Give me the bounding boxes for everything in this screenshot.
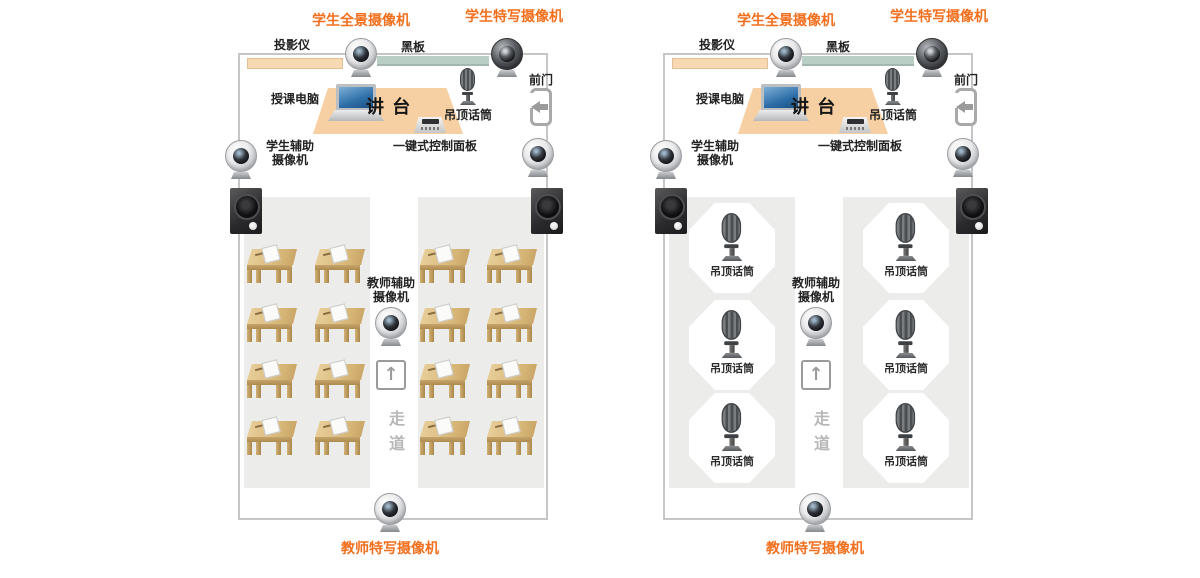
student-closeup-webcam-icon [915, 36, 949, 78]
teacher-aux-camera-label: 教师辅助 摄像机 [792, 276, 840, 305]
teacher-closeup-webcam-icon [373, 491, 407, 533]
student-aux-webcam-right-icon [521, 136, 555, 178]
blackboard-bar [377, 56, 489, 66]
ceiling-mic-icon [457, 68, 479, 106]
projector-label: 投影仪 [274, 38, 310, 52]
desk-icon [485, 245, 539, 287]
aisle-direction-box: ↑ [376, 360, 406, 390]
classroom-diagram-ceiling-mics: 学生全景摄像机 学生特写摄像机 投影仪 黑板 前门 讲 台 授课电脑 吊顶话筒 … [655, 0, 995, 578]
classroom-av-layout-diagrams: 学生全景摄像机 学生特写摄像机 投影仪 黑板 前门 讲 台 授课电脑 吊顶话筒 … [0, 0, 1200, 578]
student-panoramic-camera-label: 学生全景摄像机 [312, 13, 410, 30]
control-panel-icon [414, 117, 446, 133]
ceiling-mic-zone: 吊顶话筒 [689, 300, 775, 390]
podium-label: 讲 台 [366, 97, 411, 119]
control-panel-label: 一键式控制面板 [393, 139, 477, 153]
ceiling-mic-icon [718, 213, 747, 262]
podium-label: 讲 台 [791, 97, 836, 119]
student-panoramic-webcam-icon [769, 36, 803, 78]
ceiling-mic-zone-label: 吊顶话筒 [689, 453, 775, 469]
student-aux-webcam-left-icon [224, 138, 258, 180]
desk-icon [245, 245, 299, 287]
student-closeup-webcam-icon [490, 36, 524, 78]
front-door-icon [955, 88, 977, 126]
arrow-left-icon [531, 101, 548, 113]
desk-icon [313, 245, 367, 287]
aisle-label: 走道 [808, 410, 832, 460]
desk-icon [418, 360, 472, 402]
control-panel-label: 一键式控制面板 [818, 139, 902, 153]
desk-icon [245, 304, 299, 346]
student-closeup-camera-label: 学生特写摄像机 [465, 9, 563, 26]
desk-icon [485, 360, 539, 402]
desk-icon [418, 304, 472, 346]
ceiling-mic-zone-label: 吊顶话筒 [863, 263, 949, 279]
teacher-closeup-camera-label: 教师特写摄像机 [341, 541, 439, 558]
blackboard-label: 黑板 [401, 40, 425, 54]
front-door-label: 前门 [529, 73, 553, 87]
ceiling-mic-zone: 吊顶话筒 [863, 203, 949, 293]
ceiling-mic-icon [892, 213, 921, 262]
ceiling-mic-icon [718, 310, 747, 359]
ceiling-mic-zone-label: 吊顶话筒 [689, 360, 775, 376]
blackboard-label: 黑板 [826, 40, 850, 54]
teacher-aux-webcam-icon [374, 305, 408, 347]
ceiling-mic-zone: 吊顶话筒 [689, 393, 775, 483]
front-door-label: 前门 [954, 73, 978, 87]
front-door-icon [530, 88, 552, 126]
arrow-up-icon: ↑ [808, 366, 823, 384]
projector-label: 投影仪 [699, 38, 735, 52]
desk-icon [485, 417, 539, 459]
ceiling-mic-icon [892, 403, 921, 452]
teaching-computer-label: 授课电脑 [696, 92, 744, 106]
desk-icon [418, 417, 472, 459]
arrow-up-icon: ↑ [383, 366, 398, 384]
desk-icon [245, 360, 299, 402]
speaker-left-icon [230, 188, 262, 234]
desk-icon [313, 304, 367, 346]
teacher-aux-webcam-icon [799, 305, 833, 347]
ceiling-mic-zone-label: 吊顶话筒 [689, 263, 775, 279]
desk-icon [418, 245, 472, 287]
speaker-right-icon [956, 188, 988, 234]
desk-icon [245, 417, 299, 459]
blackboard-bar [802, 56, 914, 66]
speaker-right-icon [531, 188, 563, 234]
desk-icon [485, 304, 539, 346]
ceiling-mic-zone: 吊顶话筒 [863, 393, 949, 483]
ceiling-mic-label: 吊顶话筒 [869, 108, 917, 122]
ceiling-mic-zone-label: 吊顶话筒 [863, 453, 949, 469]
classroom-diagram-desks: 学生全景摄像机 学生特写摄像机 投影仪 黑板 前门 讲 台 授课电脑 吊顶话筒 … [230, 0, 570, 578]
speaker-left-icon [655, 188, 687, 234]
aisle-direction-box: ↑ [801, 360, 831, 390]
ceiling-mic-zone: 吊顶话筒 [689, 203, 775, 293]
projector-bar [247, 58, 343, 69]
student-aux-camera-label: 学生辅助 摄像机 [266, 139, 314, 168]
aisle-label: 走道 [383, 410, 407, 460]
desk-icon [313, 417, 367, 459]
ceiling-mic-zone: 吊顶话筒 [863, 300, 949, 390]
student-aux-camera-label: 学生辅助 摄像机 [691, 139, 739, 168]
student-panoramic-webcam-icon [344, 36, 378, 78]
desk-icon [313, 360, 367, 402]
teacher-aux-camera-label: 教师辅助 摄像机 [367, 276, 415, 305]
ceiling-mic-zone-label: 吊顶话筒 [863, 360, 949, 376]
student-closeup-camera-label: 学生特写摄像机 [890, 9, 988, 26]
student-aux-webcam-left-icon [649, 138, 683, 180]
student-aux-webcam-right-icon [946, 136, 980, 178]
ceiling-mic-label: 吊顶话筒 [444, 108, 492, 122]
student-panoramic-camera-label: 学生全景摄像机 [737, 13, 835, 30]
ceiling-mic-icon [892, 310, 921, 359]
ceiling-mic-icon [882, 68, 904, 106]
arrow-left-icon [956, 101, 973, 113]
teaching-computer-label: 授课电脑 [271, 92, 319, 106]
projector-bar [672, 58, 768, 69]
ceiling-mic-icon [718, 403, 747, 452]
teacher-closeup-webcam-icon [798, 491, 832, 533]
teacher-closeup-camera-label: 教师特写摄像机 [766, 541, 864, 558]
control-panel-icon [839, 117, 871, 133]
